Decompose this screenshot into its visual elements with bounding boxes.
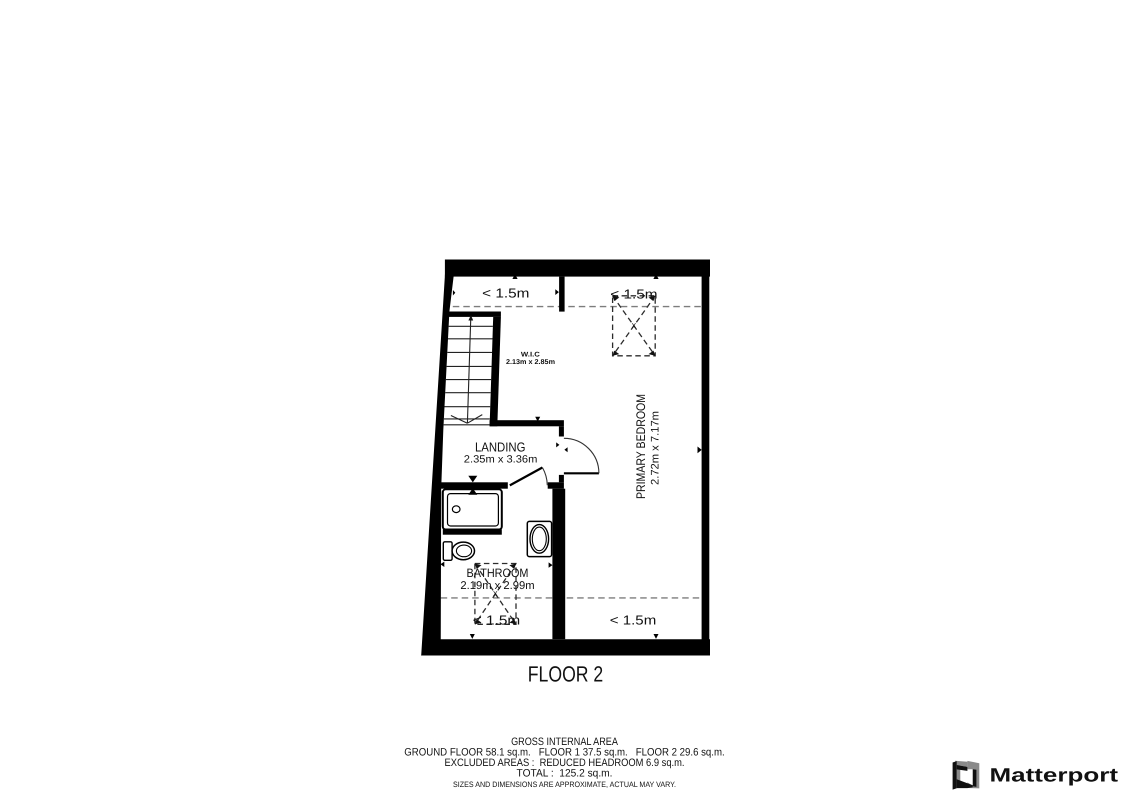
svg-text:BATHROOM: BATHROOM: [467, 566, 529, 580]
svg-text:TOTAL : 125.2 sq.m.: TOTAL : 125.2 sq.m.: [517, 767, 613, 779]
svg-text:< 1.5m: < 1.5m: [610, 287, 657, 302]
svg-text:Matterport: Matterport: [990, 765, 1119, 786]
svg-text:x: x: [632, 320, 637, 330]
svg-text:2.35m x 3.36m: 2.35m x 3.36m: [464, 454, 538, 466]
svg-text:< 1.5m: < 1.5m: [482, 286, 529, 301]
svg-text:W.I.C: W.I.C: [521, 352, 540, 359]
svg-text:< 1.5m: < 1.5m: [473, 613, 521, 628]
svg-text:SIZES AND DIMENSIONS ARE APPRO: SIZES AND DIMENSIONS ARE APPROXIMATE, AC…: [453, 780, 676, 789]
svg-text:LANDING: LANDING: [475, 440, 526, 455]
svg-text:PRIMARY BEDROOM: PRIMARY BEDROOM: [634, 394, 648, 499]
svg-text:2.13m x 2.85m: 2.13m x 2.85m: [506, 359, 555, 366]
svg-text:< 1.5m: < 1.5m: [610, 613, 657, 628]
svg-text:2.19m x 2.99m: 2.19m x 2.99m: [460, 580, 534, 592]
svg-text:FLOOR 2: FLOOR 2: [528, 662, 604, 687]
svg-text:2.72m x 7.17m: 2.72m x 7.17m: [650, 411, 662, 485]
